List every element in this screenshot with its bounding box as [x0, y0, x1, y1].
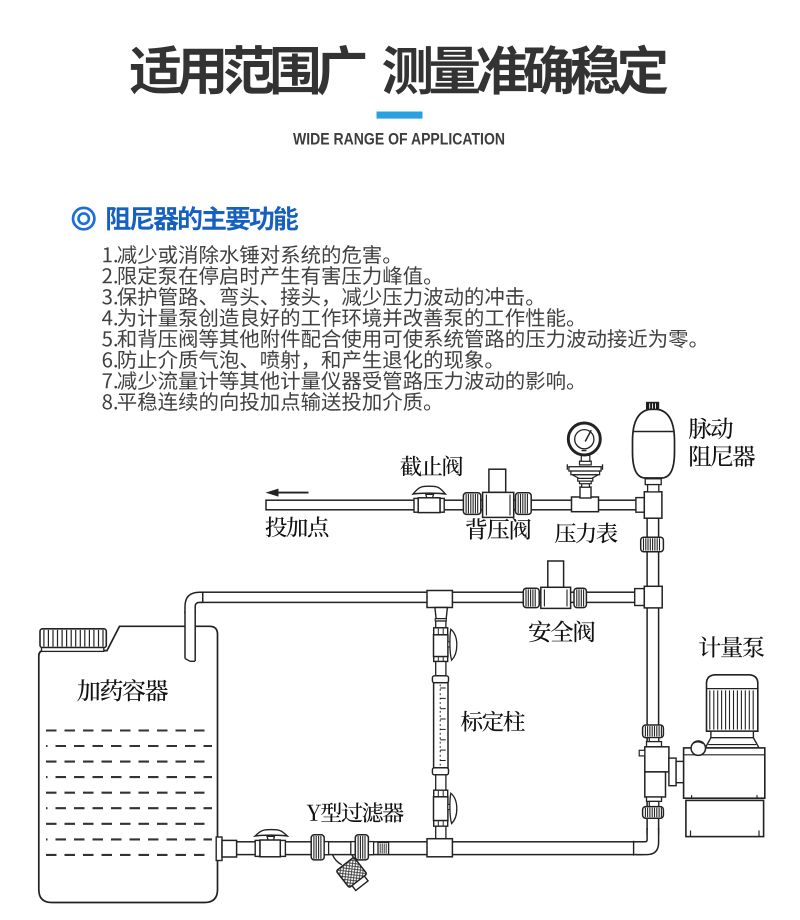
svg-text:WIDE RANGE OF APPLICATION: WIDE RANGE OF APPLICATION	[293, 131, 505, 149]
